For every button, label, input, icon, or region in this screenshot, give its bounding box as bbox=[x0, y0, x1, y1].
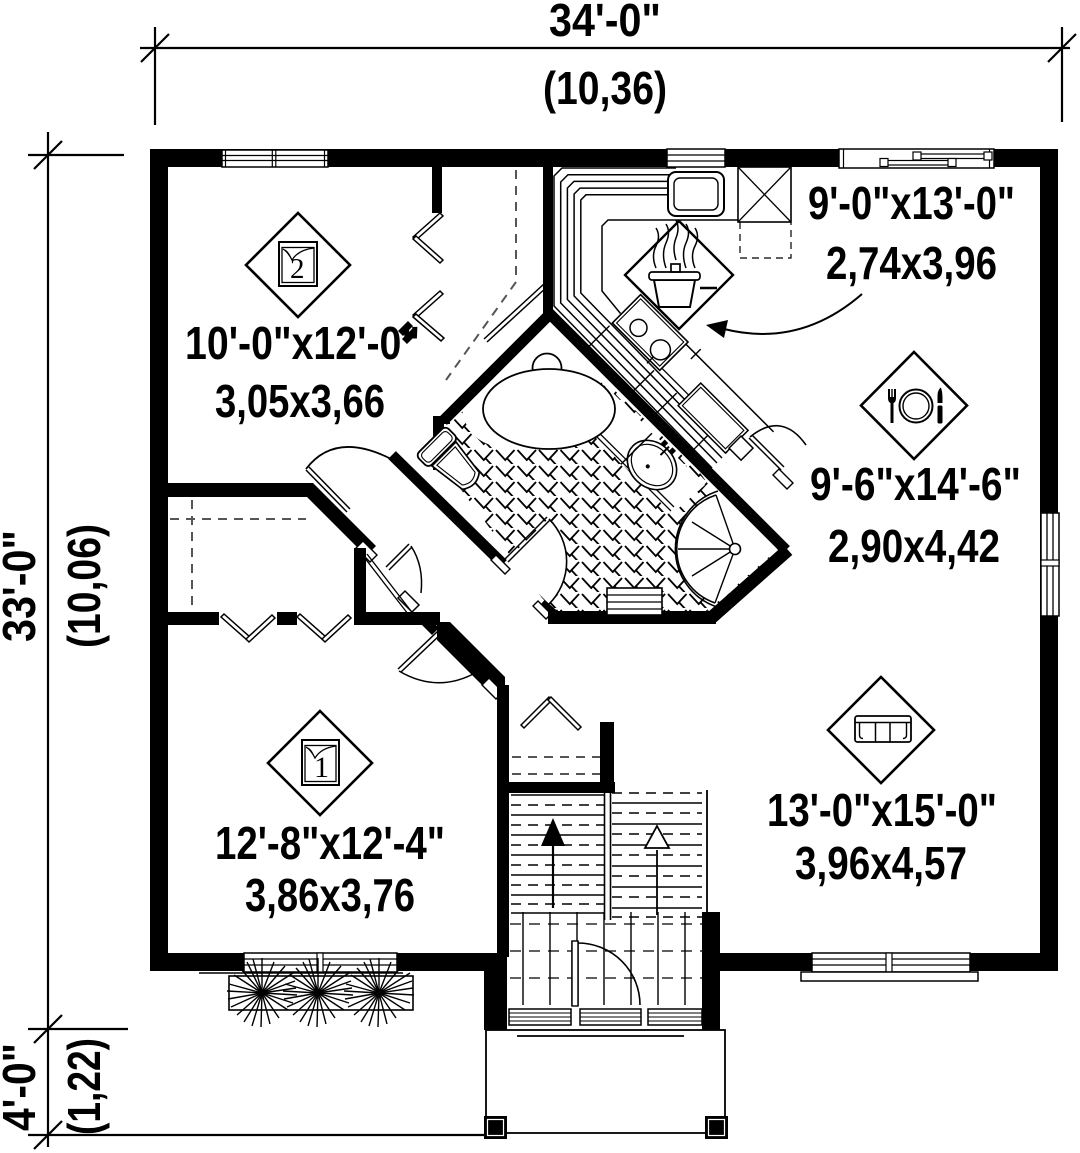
svg-text:1: 1 bbox=[314, 751, 329, 784]
svg-text:3,86x3,76: 3,86x3,76 bbox=[245, 869, 415, 921]
svg-text:2: 2 bbox=[290, 253, 305, 285]
svg-text:(10,36): (10,36) bbox=[543, 62, 667, 114]
svg-text:33'-0": 33'-0" bbox=[0, 530, 45, 642]
svg-text:12'-8"x12'-4": 12'-8"x12'-4" bbox=[215, 817, 445, 869]
svg-text:4'-0": 4'-0" bbox=[0, 1043, 45, 1131]
svg-text:(1,22): (1,22) bbox=[58, 1038, 110, 1135]
svg-text:13'-0"x15'-0": 13'-0"x15'-0" bbox=[767, 784, 997, 836]
svg-text:(10,06): (10,06) bbox=[58, 524, 110, 648]
svg-text:34'-0": 34'-0" bbox=[549, 0, 661, 46]
svg-text:3,05x3,66: 3,05x3,66 bbox=[215, 375, 385, 427]
svg-text:9'-6"x14'-6": 9'-6"x14'-6" bbox=[810, 458, 1021, 510]
svg-text:10'-0"x12'-0": 10'-0"x12'-0" bbox=[185, 317, 420, 369]
svg-text:9'-0"x13'-0": 9'-0"x13'-0" bbox=[808, 177, 1015, 229]
svg-text:2,90x4,42: 2,90x4,42 bbox=[828, 520, 1000, 572]
svg-text:2,74x3,96: 2,74x3,96 bbox=[826, 237, 997, 289]
svg-text:3,96x4,57: 3,96x4,57 bbox=[795, 837, 967, 889]
